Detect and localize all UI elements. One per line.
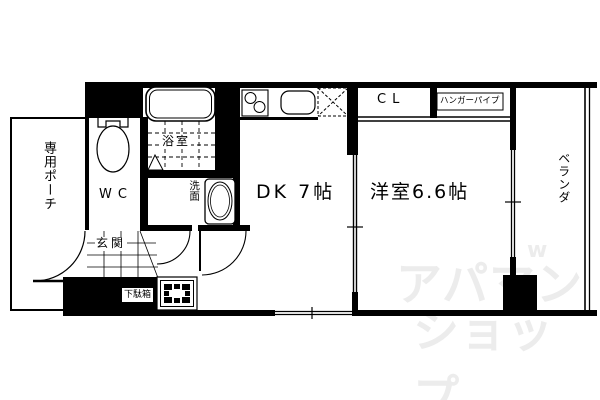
wall-bath-bottom <box>140 170 240 178</box>
toilet-icon <box>97 126 129 172</box>
wall-bath-right-block <box>215 82 240 178</box>
closet-label: CL <box>377 93 405 108</box>
veranda-label: ベランダ <box>556 152 570 204</box>
wall-left-exterior <box>85 88 89 230</box>
wall-veranda-pillar <box>503 275 537 316</box>
kitchen-counter-edge <box>240 117 318 120</box>
stove-icon <box>242 90 268 116</box>
bath-label: 浴室 <box>161 135 191 149</box>
floor-plan: アパマン ショップ w <box>0 0 600 400</box>
wall-washroom-bottom-right <box>198 225 250 231</box>
dk-door-arc <box>202 231 246 275</box>
wc-label: WC <box>99 188 133 203</box>
dk-label: DK 7帖 <box>256 182 335 204</box>
hanger-pipe-label: ハンガーパイプ <box>440 97 499 107</box>
porch-label: 専用ポーチ <box>40 141 55 211</box>
hall-door-arc <box>157 231 190 264</box>
shoe-cabinet-label: 下駄箱 <box>124 290 151 300</box>
front-door-arc <box>35 231 85 281</box>
wall-closet-divider <box>430 88 437 118</box>
wall-bottom-right <box>352 310 597 316</box>
refrigerator-space-icon <box>318 88 348 116</box>
entrance-label: 玄関 <box>95 237 127 251</box>
wall-west-veranda-top <box>510 88 516 150</box>
bathtub-icon <box>146 87 215 121</box>
washroom-label: 洗面 <box>187 180 201 201</box>
meter-box-icon <box>157 277 197 310</box>
sink-icon <box>281 91 315 114</box>
wall-washroom-bottom-left <box>140 225 192 231</box>
western-room-label: 洋室6.6帖 <box>370 182 469 204</box>
wall-wc-top-block <box>85 82 143 118</box>
wall-kitchen-closet <box>347 82 358 155</box>
